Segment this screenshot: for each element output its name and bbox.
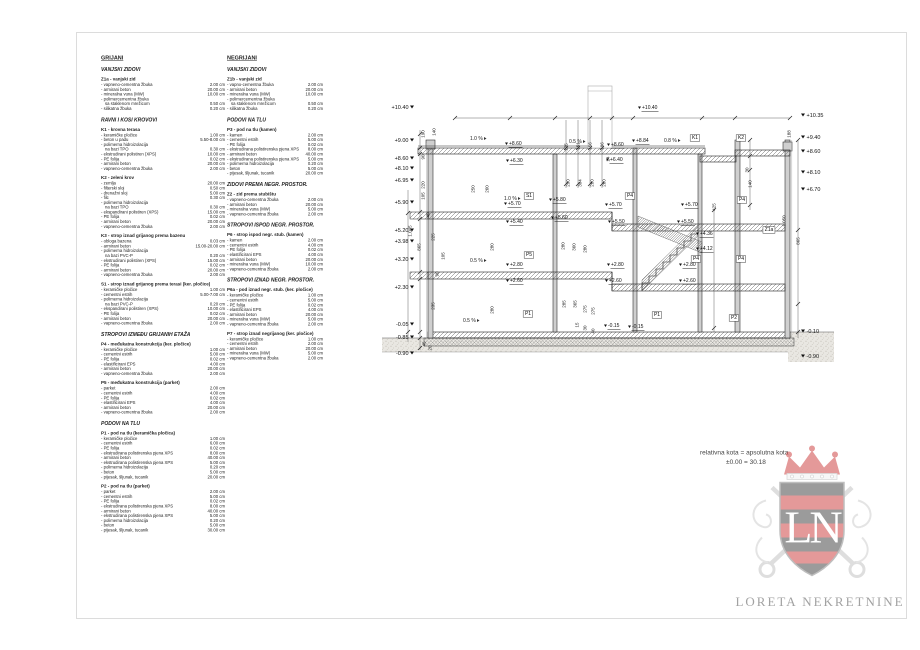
legend-section-header: STROPOVI IZMEĐU GRIJANIH ETAŽA	[101, 332, 225, 338]
legend-body-heated: VANJSKI ZIDOVIZ1a - vanjski zid- vapneno…	[101, 67, 225, 533]
legend-group-name: Z2 - zid prema stubištu	[227, 191, 323, 196]
building-section-drawing	[380, 80, 860, 370]
legend-layer-name: - vapneno-cementna žbuka	[101, 273, 153, 278]
legend-group-name: P7 - strop iznad negrijanog (ker. pločic…	[227, 331, 323, 336]
legend-layer-name: - silikatna žbuka	[227, 106, 257, 111]
legend-layer-thickness: 20.00 cm	[206, 475, 225, 480]
walls	[426, 140, 792, 338]
legend-layer-thickness: 2.00 cm	[208, 166, 225, 171]
legend-group: Z2 - zid prema stubištu- vapneno-cementn…	[227, 191, 323, 216]
legend-layer-thickness: 2.00 cm	[208, 410, 225, 415]
shield: LN	[778, 483, 848, 578]
legend-section-header: VANJSKI ZIDOVI	[227, 67, 323, 73]
crown-icon	[784, 446, 840, 480]
legend-group: P4 - međukatna konstrukcija (ker. pločic…	[101, 341, 225, 376]
legend-layer-name: - vapneno-cementna žbuka	[227, 212, 279, 217]
legend-title-unheated: NEGRIJANI	[227, 55, 323, 61]
legend-layer-row: - vapneno-cementna žbuka2.00 cm	[227, 212, 323, 217]
legend-group: P2 - pod na tlu (parket)- parket2.00 cm-…	[101, 484, 225, 533]
chimney	[588, 86, 612, 148]
legend-layer-row: - vapneno-cementna žbuka2.00 cm	[227, 267, 323, 272]
legend-layer-thickness: 5.50-8.00 cm	[198, 138, 225, 143]
loreta-watermark-logo: LN	[742, 441, 882, 589]
legend-layer-name: - pijesak, šljunak, tucanik	[101, 528, 148, 533]
legend-group-name: K1 - krovna terasa	[101, 127, 225, 132]
legend-group: P6a - pod iznad negr. stub. (ker. pločic…	[227, 287, 323, 327]
legend-layer-thickness: 2.00 cm	[306, 212, 323, 217]
legend-layer-row: - vapneno-cementna žbuka2.00 cm	[101, 371, 225, 376]
legend-group: P7 - strop iznad negrijanog (ker. pločic…	[227, 331, 323, 361]
legend-layer-thickness: 15.00-20.00 cm	[193, 244, 225, 249]
roof-slabs	[418, 146, 790, 162]
legend-group: K2 - zeleni krov- zemlja20.00 cm- filter…	[101, 175, 225, 229]
legend-group: K3 - strop iznad grijanog prema bazenu- …	[101, 233, 225, 277]
legend-section-header: STROPOVI ISPOD NEGR. PROSTOR.	[227, 223, 323, 229]
foundation	[424, 332, 794, 346]
legend-layer-name: - silikatna žbuka	[101, 106, 131, 111]
legend-layer-thickness: 30.00 cm	[206, 528, 225, 533]
legend-layer-row: - silikatna žbuka0.20 cm	[227, 106, 323, 111]
legend-group-name: P4 - međukatna konstrukcija (ker. pločic…	[101, 341, 225, 346]
legend-group-name: Z1a - vanjski zid	[101, 77, 225, 82]
legend-layer-thickness: 2.00 cm	[208, 321, 225, 326]
legend-group-name: P2 - pod na tlu (parket)	[101, 484, 225, 489]
legend-layer-name: - vapneno-cementna žbuka	[101, 410, 153, 415]
legend-layer-name: - vapneno-cementna žbuka	[101, 224, 153, 229]
legend-section-header: RAVNI I KOSI KROVOVI	[101, 117, 225, 123]
legend-layer-thickness: 20.00 cm	[304, 171, 323, 176]
legend-layer-name: - vapneno-cementna žbuka	[227, 356, 279, 361]
legend-group-name: P6 - strop ispod negr. stub. (kamen)	[227, 232, 323, 237]
legend-layer-thickness: 0.20 cm	[208, 106, 225, 111]
legend-layer-name: - vapneno-cementna žbuka	[101, 166, 153, 171]
legend-section-header: VANJSKI ZIDOVI	[101, 67, 225, 73]
legend-group: P5 - međukatna konstrukcija (parket)- pa…	[101, 380, 225, 415]
legend-layer-thickness: 2.00 cm	[208, 224, 225, 229]
legend-section-header: PODOVI NA TLU	[101, 421, 225, 427]
legend-layer-row: - vapneno-cementna žbuka2.00 cm	[101, 166, 225, 171]
legend-layer-thickness: 2.00 cm	[306, 267, 323, 272]
legend-group: Z1a - vanjski zid- vapneno-cementna žbuk…	[101, 77, 225, 112]
legend-layer-thickness: 2.00 cm	[208, 371, 225, 376]
legend-section-header: STROPOVI IZNAD NEGR. PROSTOR.	[227, 278, 323, 284]
legend-group: Z1b - vanjski zid- vapno-cementna žbuka2…	[227, 77, 323, 112]
legend-layer-name: - pijesak, šljunak, tucanik	[101, 475, 148, 480]
legend-layer-thickness: 2.00 cm	[306, 322, 323, 327]
legend-group: S1 - strop iznad grijanog prema terasi (…	[101, 282, 225, 326]
legend-group-name: K3 - strop iznad grijanog prema bazenu	[101, 233, 225, 238]
legend-group: K1 - krovna terasa- keramičke pločice1.0…	[101, 127, 225, 171]
legend-layer-name: - vapneno-cementna žbuka	[101, 371, 153, 376]
legend-layer-row: - vapneno-cementna žbuka2.00 cm	[227, 356, 323, 361]
legend-layer-name: - vapneno-cementna žbuka	[227, 322, 279, 327]
legend-group-name: P1 - pod na tlu (keramička pločica)	[101, 430, 225, 435]
legend-layer-row: - pijesak, šljunak, tucanik30.00 cm	[101, 528, 225, 533]
legend-group-name: P3 - pod na tlu (kamen)	[227, 127, 323, 132]
legend-title-heated: GRIJANI	[101, 55, 225, 61]
legend-layer-thickness: 5.00-7.00 cm	[198, 292, 225, 297]
floor-slabs	[410, 212, 785, 291]
legend-group-name: S1 - strop iznad grijanog prema terasi (…	[101, 282, 225, 287]
legend-body-unheated: VANJSKI ZIDOVIZ1b - vanjski zid- vapno-c…	[227, 67, 323, 361]
legend-section-header: PODOVI NA TLU	[227, 117, 323, 123]
legend-layer-row: - pijesak, šljunak, tucanik20.00 cm	[227, 171, 323, 176]
legend-layer-row: - vapneno-cementna žbuka2.00 cm	[101, 321, 225, 326]
legend-group-name: Z1b - vanjski zid	[227, 77, 323, 82]
legend-layer-row: - silikatna žbuka0.20 cm	[101, 106, 225, 111]
scanned-sheet: GRIJANI VANJSKI ZIDOVIZ1a - vanjski zid-…	[0, 0, 920, 650]
legend-layer-name: - pijesak, šljunak, tucanik	[227, 171, 274, 176]
legend-layer-name: - vapneno-cementna žbuka	[101, 321, 153, 326]
legend-layer-name: - vapneno-cementna žbuka	[227, 267, 279, 272]
legend-group: P3 - pod na tlu (kamen)- kamen2.00 cm- c…	[227, 127, 323, 176]
legend-group: P6 - strop ispod negr. stub. (kamen)- ka…	[227, 232, 323, 272]
legend-group-name: P6a - pod iznad negr. stub. (ker. pločic…	[227, 287, 323, 292]
section-svg	[380, 80, 860, 370]
legend-column-heated: GRIJANI VANJSKI ZIDOVIZ1a - vanjski zid-…	[101, 55, 225, 535]
legend-layer-row: - pijesak, šljunak, tucanik20.00 cm	[101, 475, 225, 480]
legend-layer-row: - vapneno-cementna žbuka2.00 cm	[101, 224, 225, 229]
legend-layer-thickness: 2.00 cm	[208, 273, 225, 278]
legend-layer-row: - vapneno-cementna žbuka2.00 cm	[101, 410, 225, 415]
legend-column-unheated: NEGRIJANI VANJSKI ZIDOVIZ1b - vanjski zi…	[227, 55, 323, 363]
legend-group-name: P5 - međukatna konstrukcija (parket)	[101, 380, 225, 385]
legend-group: P1 - pod na tlu (keramička pločica)- ker…	[101, 430, 225, 479]
legend-group-name: K2 - zeleni krov	[101, 175, 225, 180]
legend-layer-row: - vapneno-cementna žbuka2.00 cm	[227, 322, 323, 327]
logo-monogram: LN	[784, 502, 842, 553]
legend-layer-thickness: 0.20 cm	[306, 106, 323, 111]
company-wordmark: LORETA NEKRETNINE	[730, 594, 910, 610]
legend-layer-row: - vapneno-cementna žbuka2.00 cm	[101, 273, 225, 278]
legend-section-header: ZIDOVI PREMA NEGR. PROSTOR.	[227, 182, 323, 188]
legend-layer-thickness: 2.00 cm	[306, 356, 323, 361]
